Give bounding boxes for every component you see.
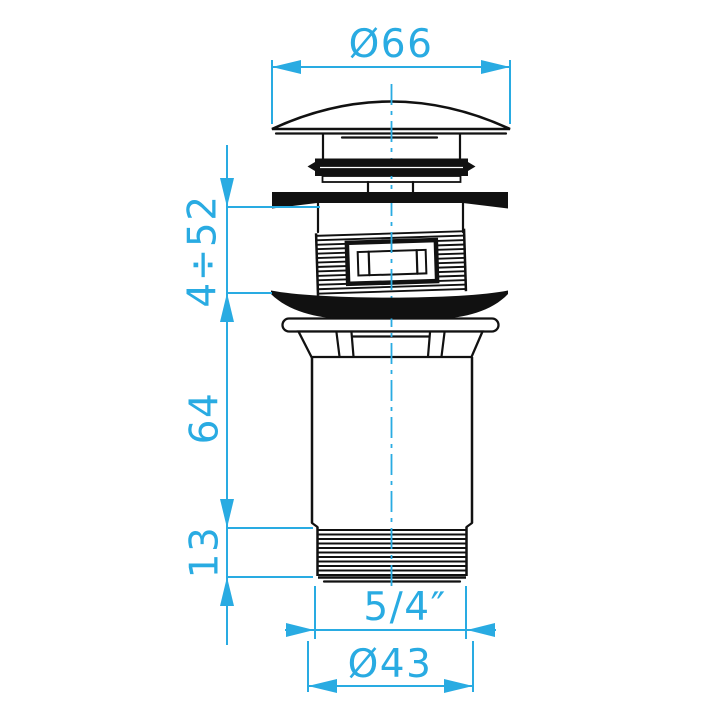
arrow-right-icon	[481, 60, 510, 74]
dimension-chain-left: 4÷52 64 13	[181, 145, 321, 645]
arrow-down-icon	[220, 499, 234, 528]
arrow-left-icon	[467, 623, 495, 637]
locknut	[299, 332, 483, 358]
label-thread-length: 13	[183, 526, 228, 579]
arrow-left-icon	[272, 60, 301, 74]
rubber-gasket	[271, 291, 508, 319]
cap-seal	[308, 159, 476, 177]
arrow-left-icon	[308, 679, 337, 693]
dimension-thread-diameter: Ø43	[308, 641, 473, 693]
dimension-thread-size: 5/4″	[285, 585, 496, 639]
waste-valve-technical-drawing: Ø66 4÷52 64 13 5/4″ Ø43	[0, 0, 720, 720]
label-body-length: 64	[183, 392, 228, 445]
label-cap-diameter: Ø66	[349, 22, 434, 67]
label-thread-diameter: Ø43	[348, 642, 433, 687]
washer-flange	[283, 319, 499, 332]
upper-neck	[318, 203, 463, 232]
label-thread-size: 5/4″	[363, 585, 446, 630]
arrow-right-icon	[444, 679, 473, 693]
drawing-page: Ø66 4÷52 64 13 5/4″ Ø43	[0, 0, 720, 720]
label-clamping-range: 4÷52	[181, 194, 226, 307]
arrow-up-icon	[220, 577, 234, 606]
arrow-right-icon	[286, 623, 314, 637]
